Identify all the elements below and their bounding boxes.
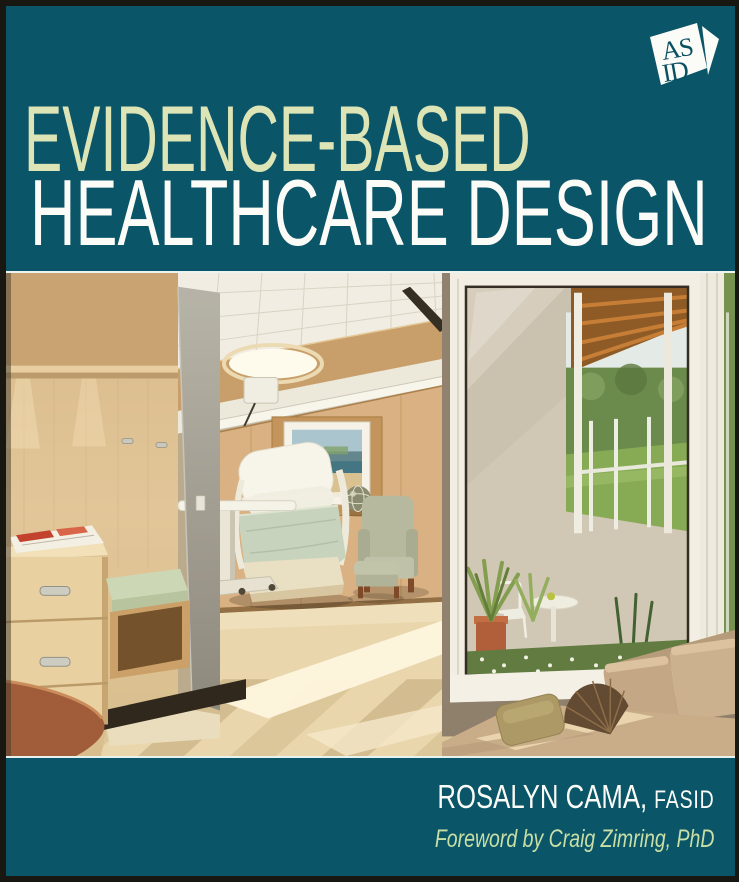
author-name: ROSALYN CAMA, (437, 778, 647, 815)
footer-divider-line (6, 756, 735, 758)
asid-publisher-logo-icon: AS ID (640, 18, 722, 100)
cover-background: EVIDENCE-BASED HEALTHCARE DESIGN AS ID (6, 6, 735, 876)
room-photo-illustration (6, 273, 735, 756)
foreword-credit: Foreword by Craig Zimring, PhD (434, 825, 714, 854)
title-line-2: HEALTHCARE DESIGN (30, 166, 708, 260)
cover-header: EVIDENCE-BASED HEALTHCARE DESIGN AS ID (6, 6, 735, 271)
cover-credits: ROSALYN CAMA,FASID Foreword by Craig Zim… (356, 779, 714, 854)
logo-letters-id: ID (660, 55, 690, 88)
cover-photo (6, 271, 735, 756)
book-cover: EVIDENCE-BASED HEALTHCARE DESIGN AS ID (0, 0, 739, 882)
author-line: ROSALYN CAMA,FASID (434, 779, 714, 816)
author-credential: FASID (654, 786, 714, 814)
